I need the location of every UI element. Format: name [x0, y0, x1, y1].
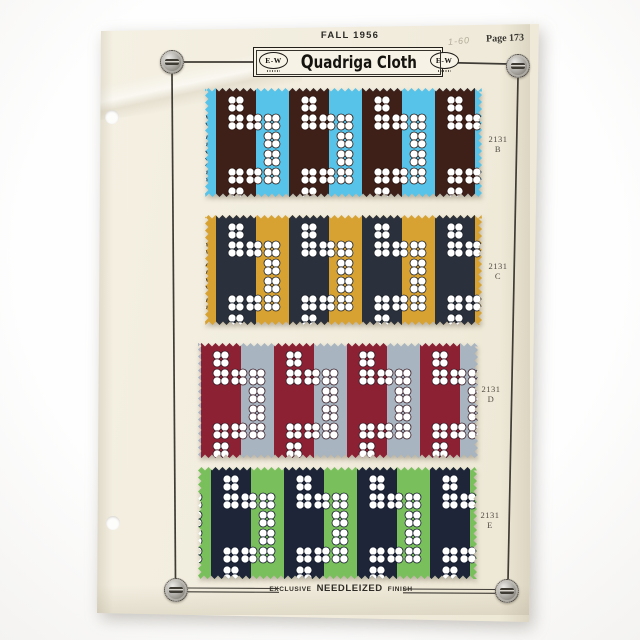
- brand-title: Quadriga Cloth: [301, 52, 417, 73]
- style-number: 2131: [476, 510, 504, 520]
- colorway-letter: E: [476, 520, 504, 530]
- sample-card-page: FALL 1956 1-60 Page 173 E-W Quadriga Clo…: [0, 0, 640, 640]
- colorway-letter: C: [484, 271, 512, 281]
- fabric-pattern: [198, 343, 478, 458]
- swatch-label-E: 2131 E: [476, 510, 504, 530]
- season-heading: FALL 1956: [295, 30, 405, 41]
- fabric-pattern: [205, 215, 482, 325]
- sample-card-photo: FALL 1956 1-60 Page 173 E-W Quadriga Clo…: [0, 0, 640, 640]
- finish-banner: EXCLUSIVE NEEDLEIZED FINISH: [276, 583, 406, 594]
- ew-logo-oval-icon: E-W: [430, 52, 459, 69]
- brand-banner: E-W Quadriga Cloth E-W: [253, 47, 443, 77]
- colorway-letter: B: [484, 144, 512, 154]
- fabric-pattern: [205, 88, 482, 197]
- fabric-swatch-2131-C: [205, 215, 482, 325]
- style-number: 2131: [484, 134, 512, 144]
- ew-logo-fineprint: [267, 70, 280, 72]
- handwritten-note: 1-60: [448, 35, 471, 47]
- style-number: 2131: [477, 384, 505, 394]
- finish-word-needleized: NEEDLEIZED: [317, 583, 383, 594]
- page-number: Page 173: [486, 32, 524, 44]
- corner-medallion-icon: [164, 578, 188, 602]
- fabric-swatch-2131-B: [205, 88, 482, 197]
- ew-logo-oval-icon: E-W: [259, 52, 288, 69]
- paper-shadow: FALL 1956 1-60 Page 173 E-W Quadriga Clo…: [0, 0, 640, 640]
- fabric-swatch-2131-D: [198, 343, 478, 458]
- colorway-letter: D: [477, 394, 505, 404]
- swatch-label-B: 2131 B: [484, 134, 512, 154]
- finish-word-finish: FINISH: [388, 586, 413, 593]
- finish-word-exclusive: EXCLUSIVE: [269, 586, 311, 593]
- ew-logo-fineprint: [438, 70, 451, 72]
- corner-medallion-icon: [160, 50, 184, 74]
- corner-medallion-icon: [506, 54, 530, 78]
- corner-medallion-icon: [495, 579, 519, 603]
- ew-logo-left: E-W: [259, 52, 288, 72]
- style-number: 2131: [484, 261, 512, 271]
- swatch-label-D: 2131 D: [477, 384, 505, 404]
- swatch-label-C: 2131 C: [484, 261, 512, 281]
- fabric-swatch-2131-E: [198, 467, 477, 579]
- ew-logo-right: E-W: [430, 52, 459, 72]
- fabric-pattern: [198, 467, 477, 579]
